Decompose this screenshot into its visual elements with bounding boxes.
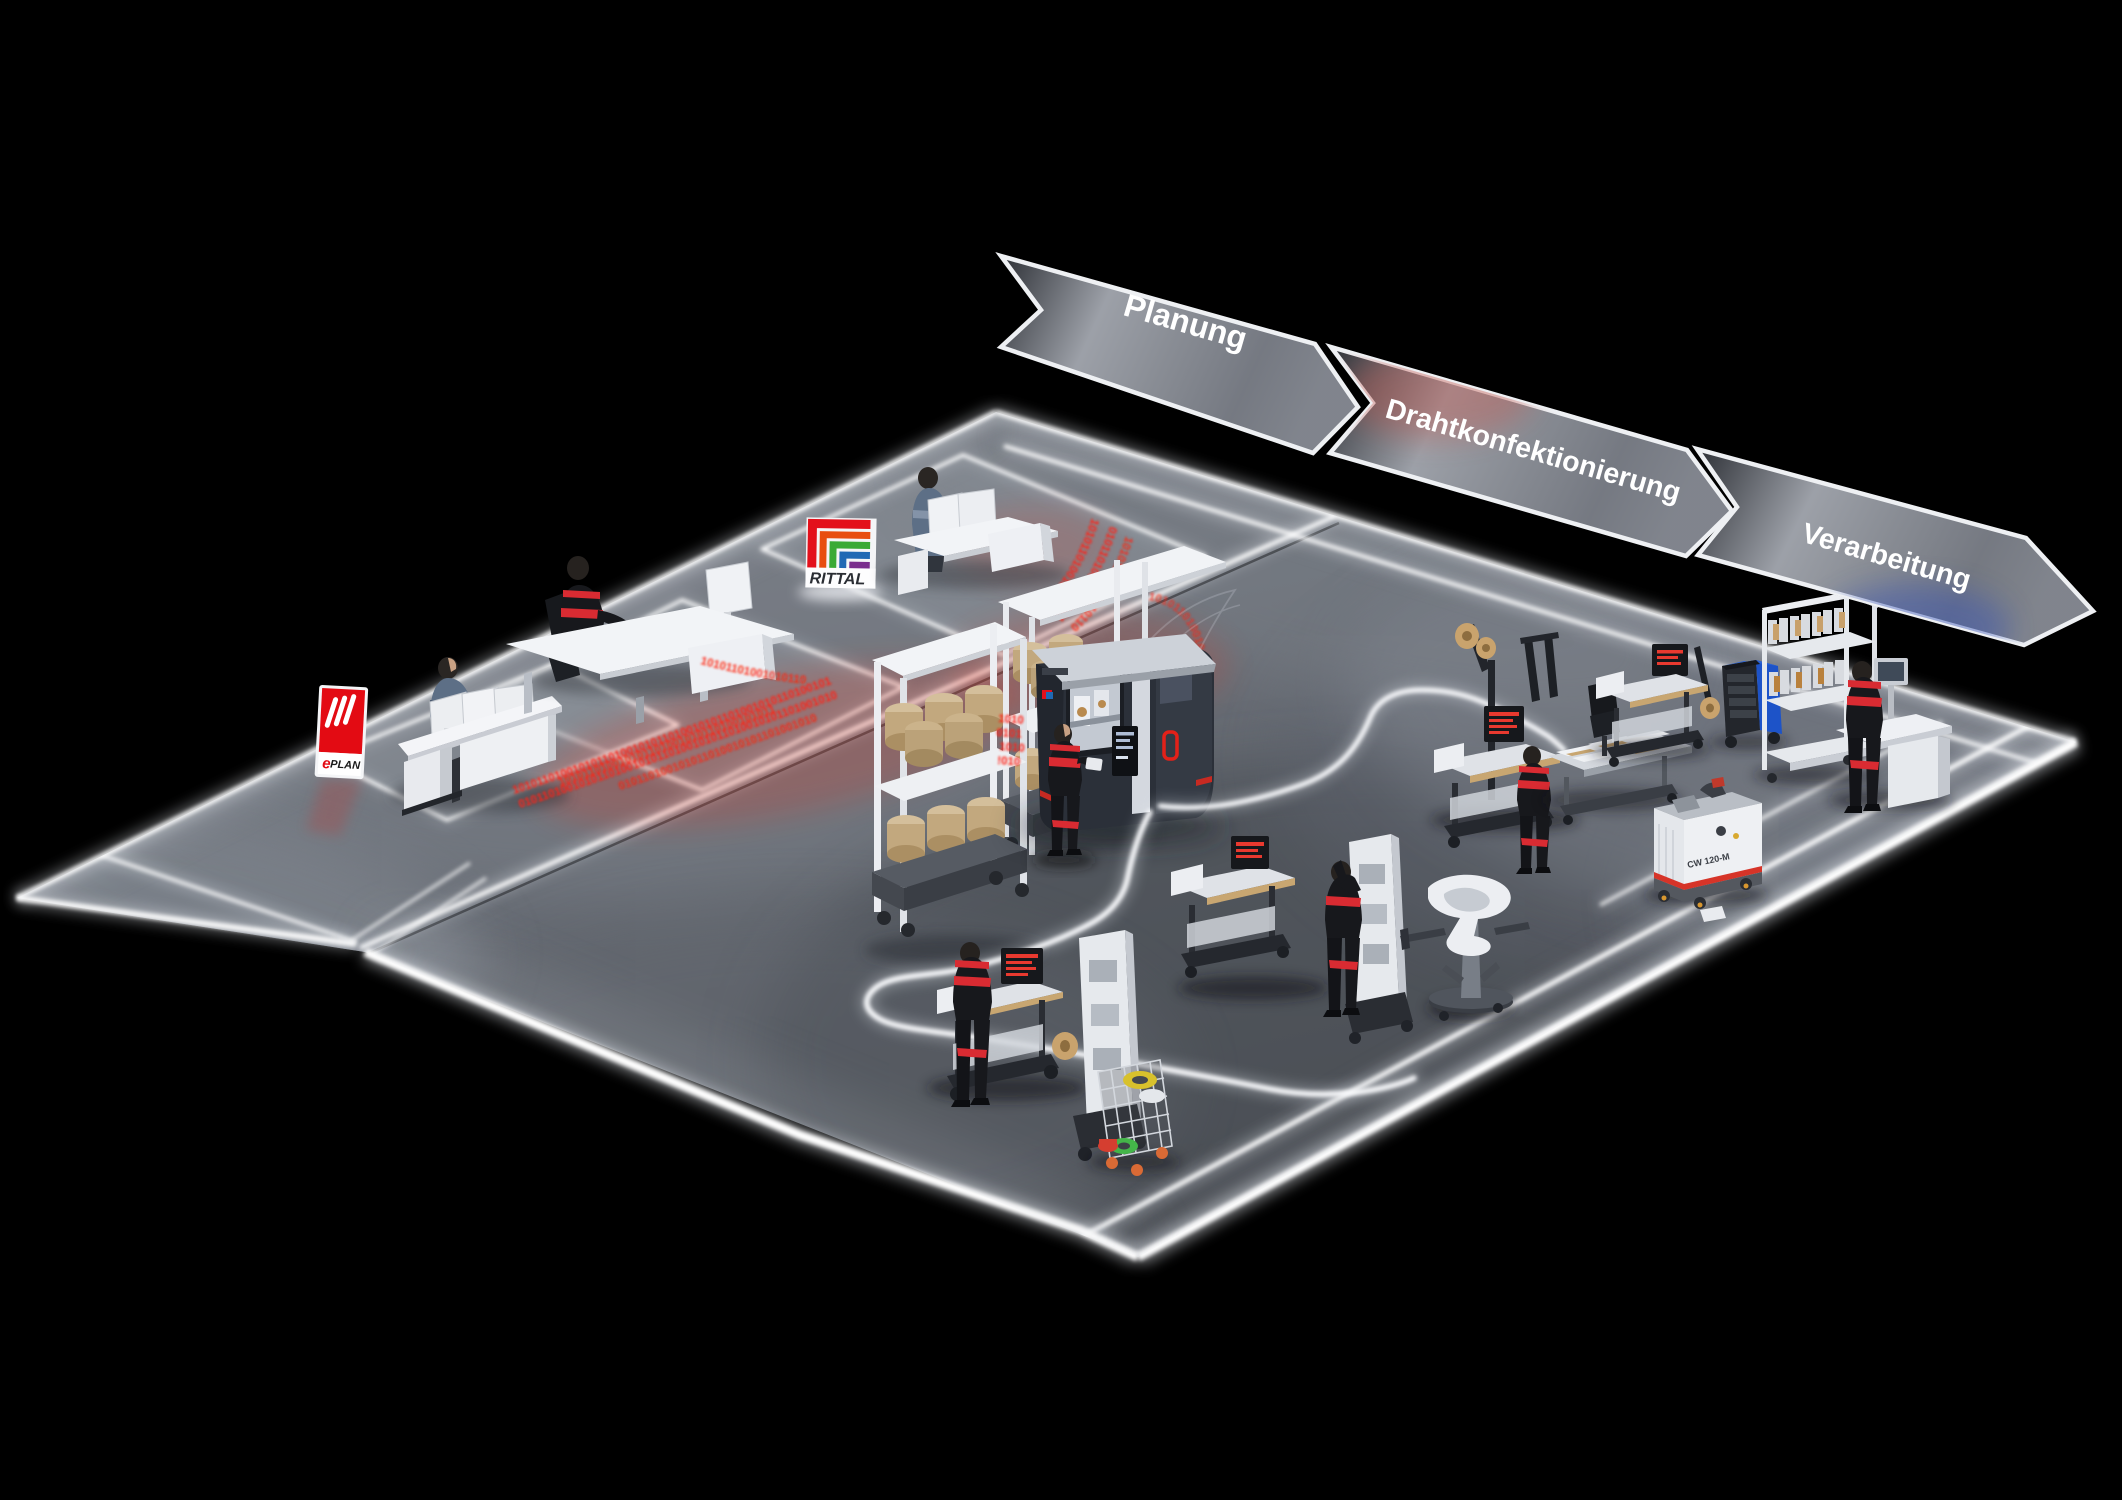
svg-text:1010: 1010 bbox=[999, 741, 1025, 755]
svg-text:!010: !010 bbox=[997, 755, 1021, 769]
svg-text:RITTAL: RITTAL bbox=[809, 570, 865, 588]
svg-text:0101: 0101 bbox=[996, 727, 1023, 741]
svg-text:1010: 1010 bbox=[998, 713, 1024, 727]
svg-text:PLAN: PLAN bbox=[330, 758, 362, 772]
